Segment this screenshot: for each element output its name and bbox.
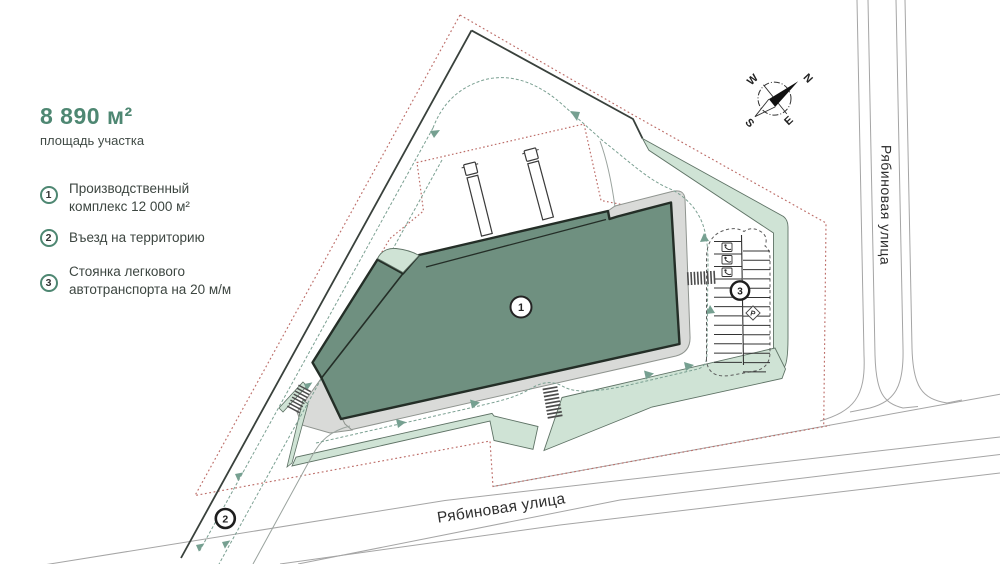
- svg-text:1: 1: [518, 302, 524, 314]
- svg-text:3: 3: [737, 287, 743, 298]
- svg-text:W: W: [745, 72, 761, 88]
- svg-text:Рябиновая улица: Рябиновая улица: [877, 145, 894, 265]
- svg-text:E: E: [782, 114, 796, 128]
- svg-text:N: N: [801, 72, 815, 86]
- svg-text:2: 2: [222, 514, 228, 526]
- svg-text:Рябиновая улица: Рябиновая улица: [436, 490, 567, 526]
- svg-text:S: S: [742, 116, 756, 130]
